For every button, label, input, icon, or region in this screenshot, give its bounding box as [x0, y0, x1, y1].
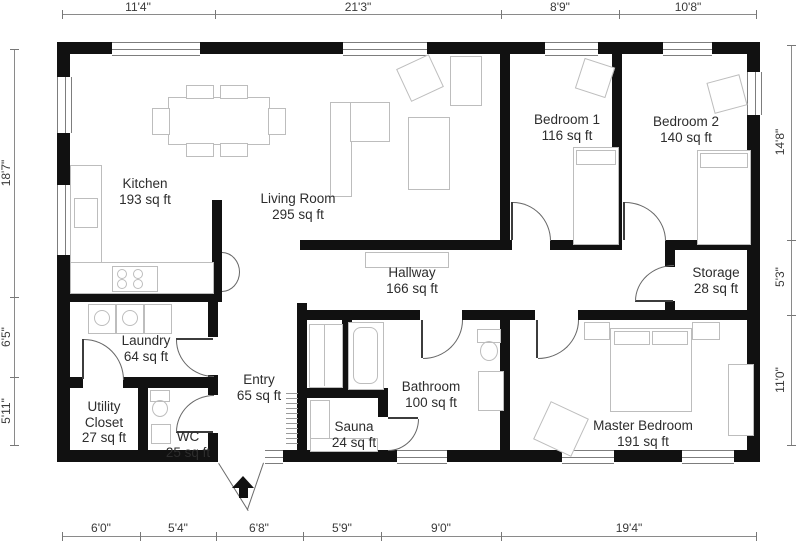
room-name: Storage — [692, 265, 739, 281]
shower-closet — [309, 324, 343, 388]
shower-closet-line — [324, 324, 325, 386]
room-area: 24 sq ft — [332, 435, 376, 451]
room-area: 100 sq ft — [402, 395, 461, 411]
room-area: 191 sq ft — [593, 434, 693, 450]
floor-plan: Kitchen 193 sq ft Living Room 295 sq ft … — [0, 0, 800, 542]
room-label-living-room: Living Room 295 sq ft — [260, 191, 335, 222]
stove-burner — [133, 269, 143, 279]
wall-bottom — [734, 450, 760, 462]
door-arc — [176, 340, 214, 377]
wall-sauna-east — [378, 388, 388, 417]
stove-burner — [117, 269, 127, 279]
dim-tick — [787, 445, 796, 446]
chair — [186, 85, 214, 99]
dim-label-left: 18'7" — [0, 160, 13, 187]
door-arc — [513, 202, 551, 241]
laundry-counter — [144, 304, 172, 334]
wall-living-south — [300, 240, 512, 250]
door-arc — [625, 202, 666, 241]
wall-hall-south — [578, 310, 747, 320]
wall-left — [57, 42, 70, 77]
dim-label-right: 11'0" — [773, 367, 787, 393]
window — [663, 42, 712, 56]
wall-hall-south — [462, 310, 535, 320]
room-label-wc: WC 25 sq ft — [166, 429, 210, 460]
room-name: Utility Closet — [78, 399, 130, 430]
room-label-bedroom-1: Bedroom 1 116 sq ft — [534, 112, 600, 143]
room-label-storage: Storage 28 sq ft — [692, 265, 739, 296]
dim-label-bottom: 9'0" — [431, 521, 451, 535]
wall-entry-west — [208, 302, 218, 337]
wall-right — [747, 42, 760, 72]
dim-label-bottom: 5'9" — [332, 521, 352, 535]
dim-tick — [10, 49, 19, 50]
dim-label-bottom: 6'0" — [91, 521, 111, 535]
wall-utility-wc — [138, 388, 148, 450]
wall-left — [57, 255, 70, 462]
room-area: 28 sq ft — [692, 281, 739, 297]
wall-hall-south — [297, 310, 420, 320]
window — [747, 72, 762, 115]
door-arc — [538, 320, 579, 359]
entrance-arrow-icon — [239, 488, 248, 498]
dim-line-left — [14, 49, 15, 445]
armchair — [396, 54, 444, 102]
door-arc — [423, 320, 463, 359]
dim-tick — [10, 377, 19, 378]
wall-bedroom1-west — [500, 54, 510, 240]
window — [112, 42, 200, 56]
dim-tick — [619, 10, 620, 19]
room-area: 166 sq ft — [386, 281, 438, 297]
bathroom-sink — [478, 371, 504, 411]
armchair — [706, 74, 747, 114]
room-label-utility-closet: Utility Closet 27 sq ft — [78, 399, 130, 446]
dim-label-top: 11'4" — [125, 0, 151, 14]
room-area: 140 sq ft — [653, 130, 719, 146]
dim-label-left: 6'5" — [0, 327, 13, 347]
dim-line-right — [791, 45, 792, 445]
dim-tick — [10, 445, 19, 446]
room-label-hallway: Hallway 166 sq ft — [386, 265, 438, 296]
room-label-entry: Entry 65 sq ft — [237, 372, 281, 403]
room-name: Living Room — [260, 191, 335, 207]
dining-table — [168, 97, 270, 145]
stove-burner — [133, 279, 143, 289]
window — [57, 77, 72, 133]
room-name: Laundry — [122, 333, 171, 349]
room-name: Kitchen — [119, 176, 171, 192]
dim-tick — [62, 532, 63, 541]
dim-line-top — [62, 14, 757, 15]
dim-label-top: 21'3" — [345, 0, 372, 14]
dim-label-right: 5'3" — [773, 267, 787, 287]
room-label-bedroom-2: Bedroom 2 140 sq ft — [653, 114, 719, 145]
room-label-master-bedroom: Master Bedroom 191 sq ft — [593, 418, 693, 449]
room-label-bathroom: Bathroom 100 sq ft — [402, 379, 461, 410]
wardrobe — [728, 364, 754, 436]
room-name: Sauna — [332, 419, 376, 435]
window — [682, 450, 734, 464]
door-arc — [388, 419, 419, 451]
room-label-sauna: Sauna 24 sq ft — [332, 419, 376, 450]
window — [397, 450, 447, 464]
wall-top — [200, 42, 343, 54]
sofa — [350, 102, 390, 142]
dim-label-left: 5'11" — [0, 398, 13, 424]
wall-top — [427, 42, 545, 54]
dryer-door — [122, 310, 138, 326]
room-name: Bedroom 1 — [534, 112, 600, 128]
dim-label-top: 8'9" — [550, 0, 570, 14]
wall-storage-west — [665, 301, 675, 310]
window — [545, 42, 598, 56]
dim-tick — [787, 45, 796, 46]
dim-label-bottom: 5'4" — [168, 521, 188, 535]
radiator-icon — [286, 393, 298, 447]
pillow — [700, 153, 748, 168]
room-area: 65 sq ft — [237, 388, 281, 404]
wall-entry-east — [297, 303, 307, 450]
room-name: Bathroom — [402, 379, 461, 395]
dim-label-bottom: 6'8" — [249, 521, 269, 535]
dim-label-top: 10'8" — [675, 0, 702, 14]
corner-shelf — [450, 56, 482, 106]
wall-bottom — [614, 450, 682, 462]
stove-burner — [117, 279, 127, 289]
dim-tick — [501, 10, 502, 19]
nightstand — [584, 322, 610, 340]
pillow — [614, 331, 650, 345]
pillow — [652, 331, 688, 345]
dim-tick — [62, 10, 63, 19]
dim-label-right: 14'8" — [773, 129, 787, 156]
room-area: 193 sq ft — [119, 192, 171, 208]
wall-laundry-south — [123, 377, 218, 388]
dim-tick — [756, 10, 757, 19]
room-name: Bedroom 2 — [653, 114, 719, 130]
dim-tick — [756, 532, 757, 541]
room-name: Master Bedroom — [593, 418, 693, 434]
nightstand — [692, 322, 720, 340]
door-threshold — [265, 450, 283, 464]
dim-tick — [787, 315, 796, 316]
door-arc — [635, 265, 674, 301]
wall-bottom — [447, 450, 562, 462]
pillow — [576, 150, 616, 165]
door-arc — [176, 395, 214, 432]
door-arc — [84, 339, 124, 380]
dim-label-bottom: 19'4" — [616, 521, 643, 535]
room-name: WC — [166, 429, 210, 445]
toilet-bowl — [480, 341, 498, 361]
window — [343, 42, 427, 56]
armchair — [575, 58, 615, 98]
armchair — [533, 401, 589, 457]
room-area: 116 sq ft — [534, 128, 600, 144]
chair — [220, 85, 248, 99]
dim-tick — [501, 532, 502, 541]
toilet-bowl — [152, 400, 168, 417]
bathtub-inner — [353, 327, 378, 384]
room-label-kitchen: Kitchen 193 sq ft — [119, 176, 171, 207]
dim-tick — [787, 240, 796, 241]
dim-tick — [216, 532, 217, 541]
room-name: Entry — [237, 372, 281, 388]
dim-line-bottom — [62, 536, 757, 537]
wall-top — [598, 42, 663, 54]
entrance-arrow-icon — [232, 476, 254, 488]
dim-tick — [10, 297, 19, 298]
chair — [186, 143, 214, 157]
room-name: Hallway — [386, 265, 438, 281]
room-area: 27 sq ft — [78, 430, 130, 446]
sofa — [330, 102, 352, 197]
kitchen-sink — [74, 198, 98, 228]
coffee-table — [408, 117, 450, 190]
dim-tick — [303, 532, 304, 541]
chair — [268, 108, 286, 135]
dim-tick — [215, 10, 216, 19]
dim-tick — [381, 532, 382, 541]
room-area: 25 sq ft — [166, 445, 210, 461]
washer-door — [94, 310, 110, 326]
wall-left — [57, 133, 70, 185]
room-label-laundry: Laundry 64 sq ft — [122, 333, 171, 364]
door-arc — [222, 252, 240, 292]
chair — [152, 108, 170, 135]
chair — [220, 143, 248, 157]
room-area: 295 sq ft — [260, 207, 335, 223]
room-area: 64 sq ft — [122, 349, 171, 365]
dim-tick — [140, 532, 141, 541]
